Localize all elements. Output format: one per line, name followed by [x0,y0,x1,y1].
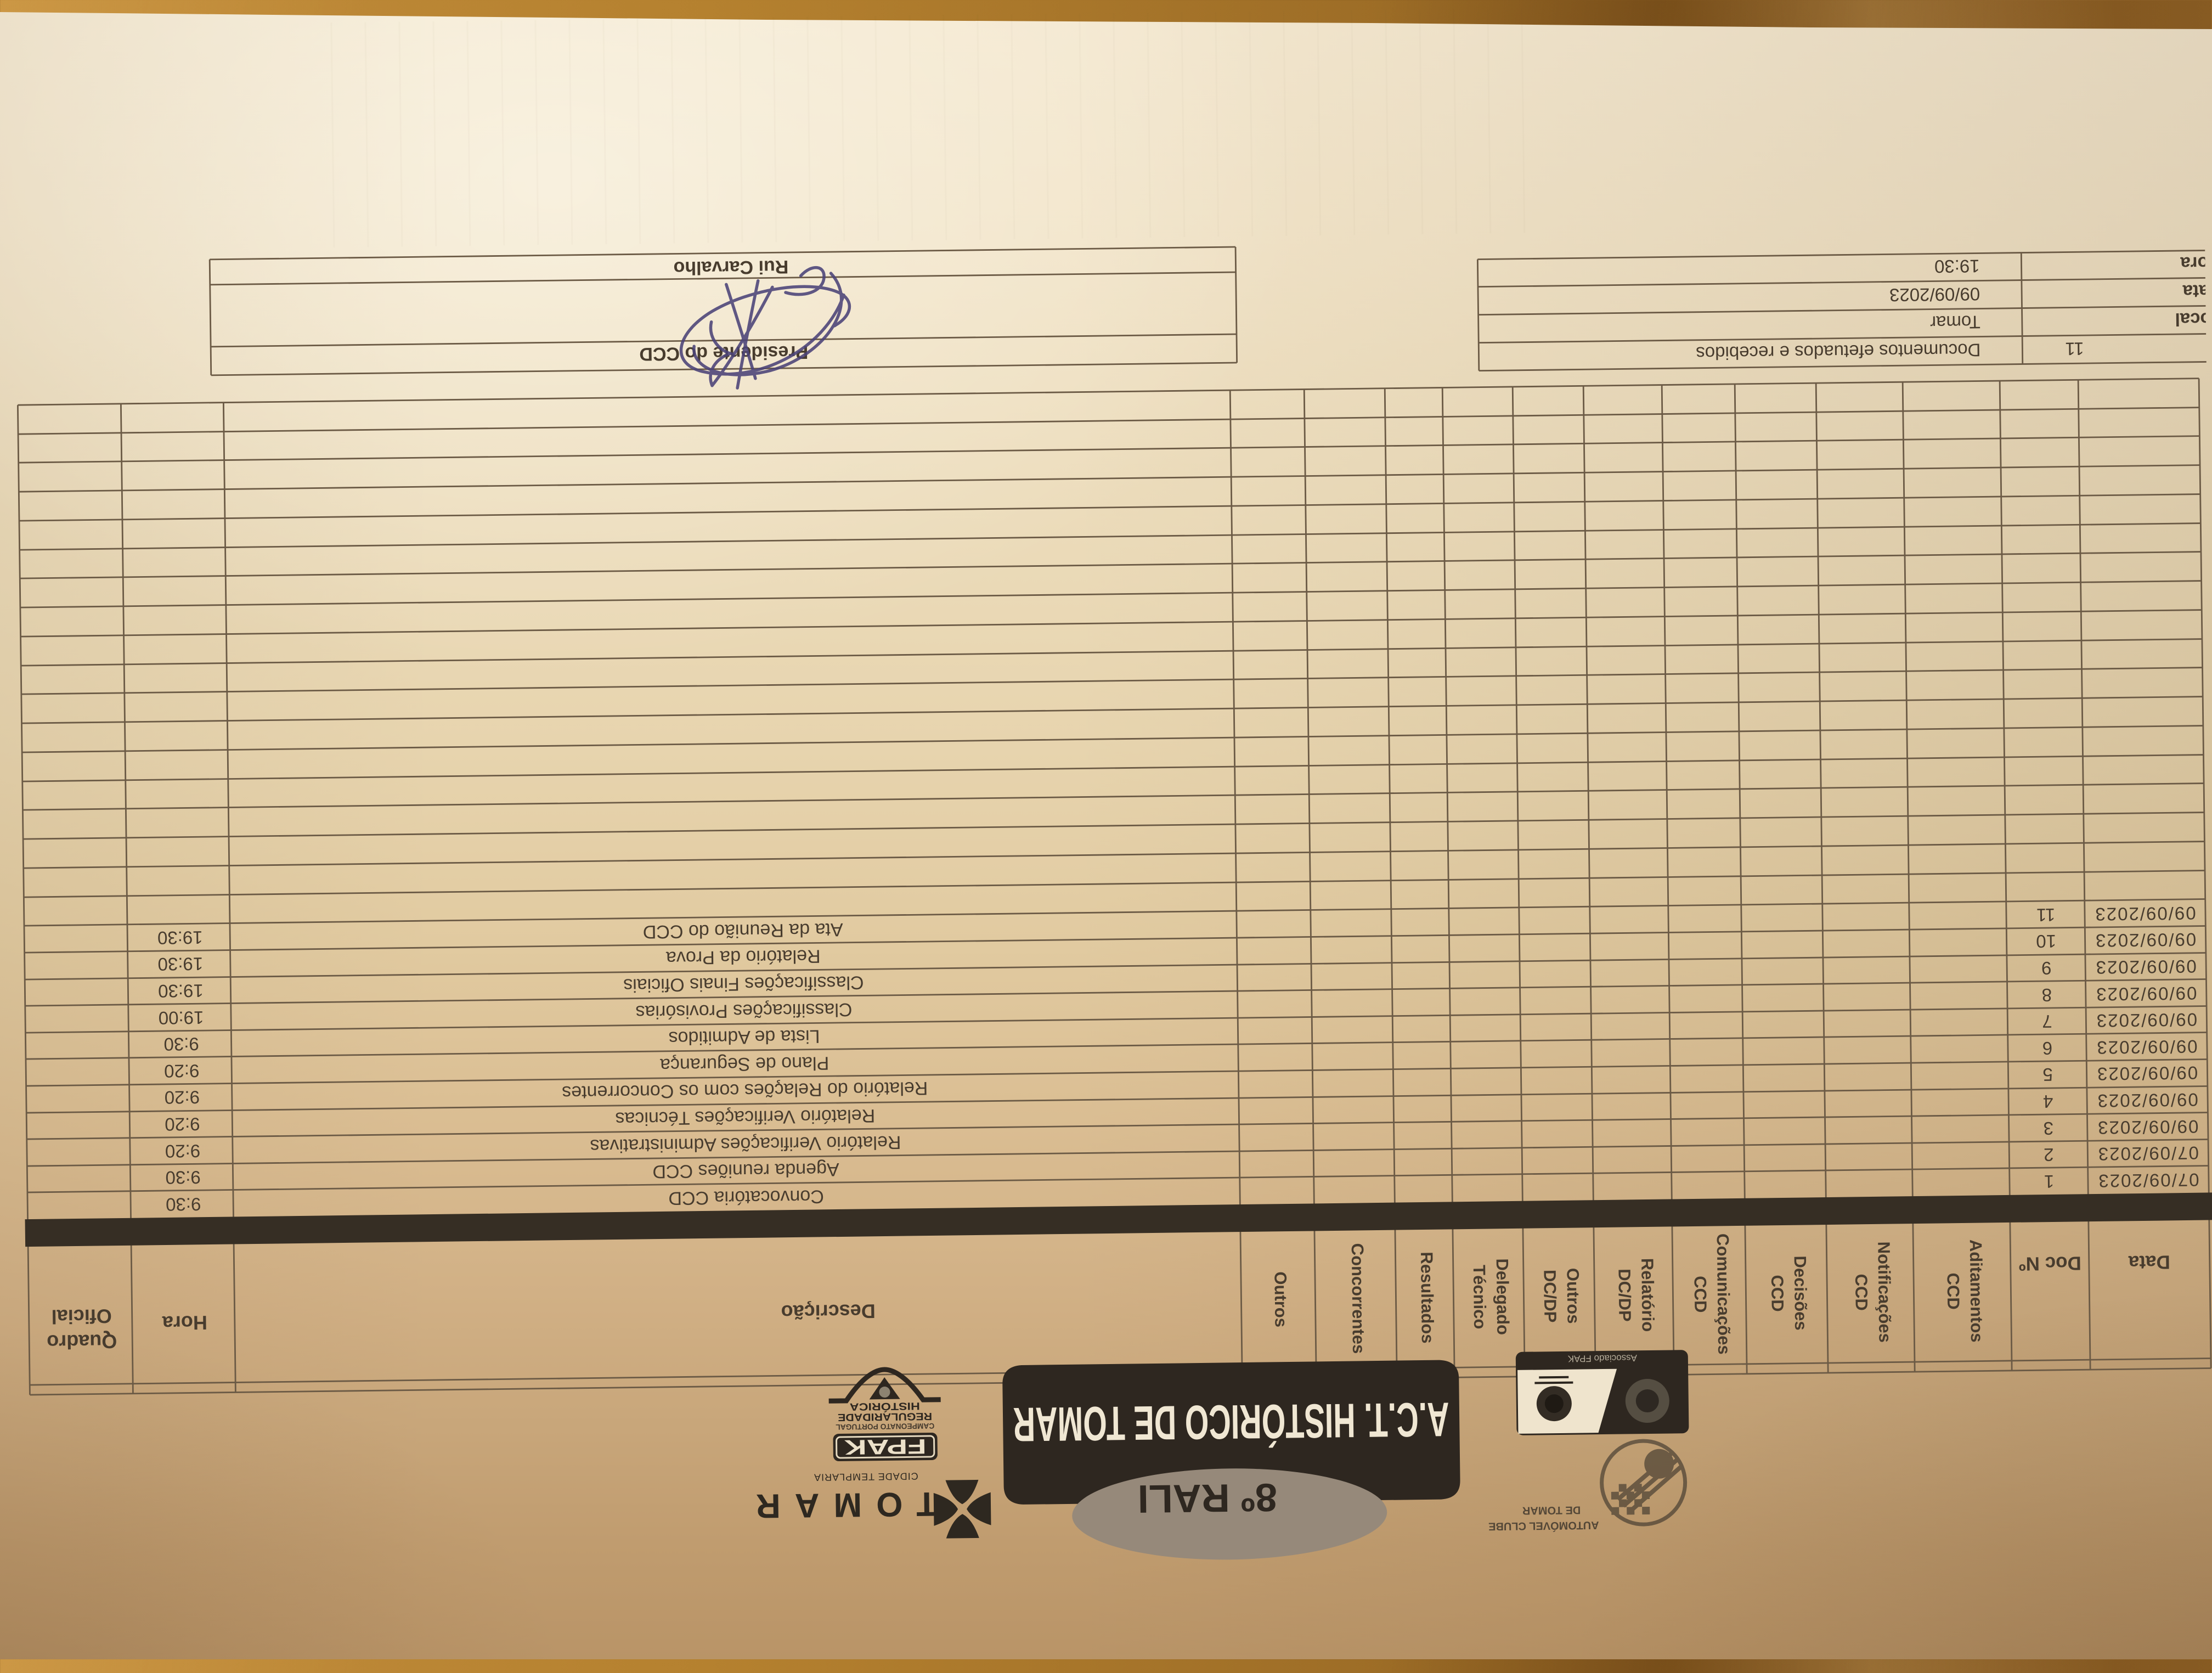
svg-text:Decisões: Decisões [1791,1255,1811,1331]
svg-text:9:30: 9:30 [165,1167,201,1188]
svg-text:9:20: 9:20 [165,1114,200,1135]
svg-text:Data: Data [2128,1251,2170,1273]
svg-text:1: 1 [2044,1171,2055,1192]
svg-text:5: 5 [2042,1064,2053,1085]
svg-text:09/09/2023: 09/09/2023 [2095,956,2197,978]
svg-text:Convocatória CCD: Convocatória CCD [668,1186,824,1208]
svg-text:Hora: Hora [162,1311,207,1334]
svg-text:CCD: CCD [1852,1274,1871,1311]
svg-text:Relatório: Relatório [1638,1258,1658,1332]
svg-text:09/09/2023: 09/09/2023 [2095,983,2197,1005]
svg-text:Ata da Reunião do CCD: Ata da Reunião do CCD [643,919,843,942]
svg-text:Relatório da Prova: Relatório da Prova [666,945,821,968]
svg-text:19:00: 19:00 [159,1007,204,1028]
svg-text:3: 3 [2043,1118,2053,1139]
svg-text:19:30: 19:30 [1934,256,1980,277]
svg-text:Relatório Verificações Adminis: Relatório Verificações Administrativas [590,1132,901,1157]
svg-text:Notificações: Notificações [1874,1241,1894,1343]
svg-text:09/09/2023: 09/09/2023 [2096,1063,2198,1084]
svg-text:CAMPEONATO PORTUGAL: CAMPEONATO PORTUGAL [836,1422,935,1432]
svg-text:09/09/2023: 09/09/2023 [2096,1037,2198,1058]
svg-text:CCD: CCD [1768,1275,1787,1312]
svg-text:09/09/2023: 09/09/2023 [1889,284,1980,305]
svg-text:AUTOMÓVEL CLUBE: AUTOMÓVEL CLUBE [1488,1519,1599,1533]
svg-text:CCD: CCD [1943,1272,1963,1310]
svg-text:Concorrentes: Concorrentes [1348,1243,1368,1354]
svg-text:2: 2 [2044,1145,2054,1165]
svg-text:Relatório Verificações Técnica: Relatório Verificações Técnicas [615,1105,875,1129]
svg-text:09/09/2023: 09/09/2023 [2097,1117,2199,1138]
svg-text:Agenda reuniões CCD: Agenda reuniões CCD [652,1159,839,1182]
svg-text:09/09/2023: 09/09/2023 [2094,903,2196,925]
svg-text:Resultados: Resultados [1417,1252,1437,1344]
svg-text:Aditamentos: Aditamentos [1966,1240,1987,1343]
svg-text:9: 9 [2041,958,2052,978]
svg-text:Quadro: Quadro [47,1330,117,1354]
svg-text:07/09/2023: 07/09/2023 [2097,1143,2199,1164]
svg-text:Lista de Admitidos: Lista de Admitidos [668,1026,820,1048]
svg-text:9:30: 9:30 [166,1194,201,1215]
svg-text:Outros: Outros [1563,1268,1583,1324]
svg-text:TOMAR: TOMAR [741,1485,937,1525]
svg-text:Classificações Finais Oficiais: Classificações Finais Oficiais [623,972,864,995]
svg-text:11: 11 [2036,905,2056,925]
svg-text:Plano de Segurança: Plano de Segurança [660,1052,830,1075]
svg-text:Delegado: Delegado [1493,1258,1513,1335]
svg-text:Técnico: Técnico [1470,1265,1489,1330]
svg-text:Descrição: Descrição [781,1300,876,1323]
svg-text:DE TOMAR: DE TOMAR [1522,1504,1581,1517]
svg-text:09/09/2023: 09/09/2023 [2095,930,2197,951]
svg-text:19:30: 19:30 [157,927,203,948]
svg-text:Classificações Provisórias: Classificações Provisórias [635,999,852,1023]
svg-text:FPAK: FPAK [844,1434,927,1458]
svg-text:Oficial: Oficial [51,1305,112,1328]
svg-text:CIDADE TEMPLARIA: CIDADE TEMPLARIA [814,1471,918,1483]
svg-text:A.C.T. HISTÓRICO DE TOMAR: A.C.T. HISTÓRICO DE TOMAR [1013,1392,1449,1452]
svg-text:8: 8 [2041,985,2052,1005]
svg-text:Rui Carvalho: Rui Carvalho [673,256,788,279]
svg-text:Relatório do Relações com os C: Relatório do Relações com os Concorrente… [562,1078,928,1103]
svg-text:8º RALI: 8º RALI [1137,1475,1277,1520]
svg-text:9:20: 9:20 [165,1141,201,1162]
svg-text:Doc Nº: Doc Nº [2018,1252,2081,1274]
svg-text:6: 6 [2042,1038,2053,1058]
svg-text:9:20: 9:20 [164,1087,200,1108]
svg-text:09/09/2023: 09/09/2023 [2096,1010,2198,1031]
svg-text:HISTÓRICA: HISTÓRICA [849,1400,920,1413]
svg-text:Tomar: Tomar [1930,312,1980,333]
svg-text:DC/DP: DC/DP [1540,1270,1560,1323]
svg-text:9:30: 9:30 [163,1034,199,1055]
svg-text:CCD: CCD [1691,1276,1711,1313]
svg-text:DC/DP: DC/DP [1615,1269,1634,1322]
svg-text:9:20: 9:20 [164,1061,200,1081]
svg-text:19:30: 19:30 [158,981,204,1001]
svg-text:10: 10 [2036,931,2056,951]
svg-text:11: 11 [2065,339,2084,359]
svg-text:Comunicações: Comunicações [1713,1233,1734,1355]
svg-text:Outros: Outros [1271,1271,1290,1327]
svg-text:4: 4 [2043,1091,2053,1112]
svg-text:19:30: 19:30 [157,954,203,974]
svg-text:09/09/2023: 09/09/2023 [2096,1090,2198,1111]
svg-text:7: 7 [2042,1011,2052,1032]
svg-text:Associado FPAK: Associado FPAK [1567,1353,1637,1364]
svg-text:Documentos efetuados e recebid: Documentos efetuados e recebidos [1696,340,1981,363]
svg-text:07/09/2023: 07/09/2023 [2097,1170,2199,1191]
